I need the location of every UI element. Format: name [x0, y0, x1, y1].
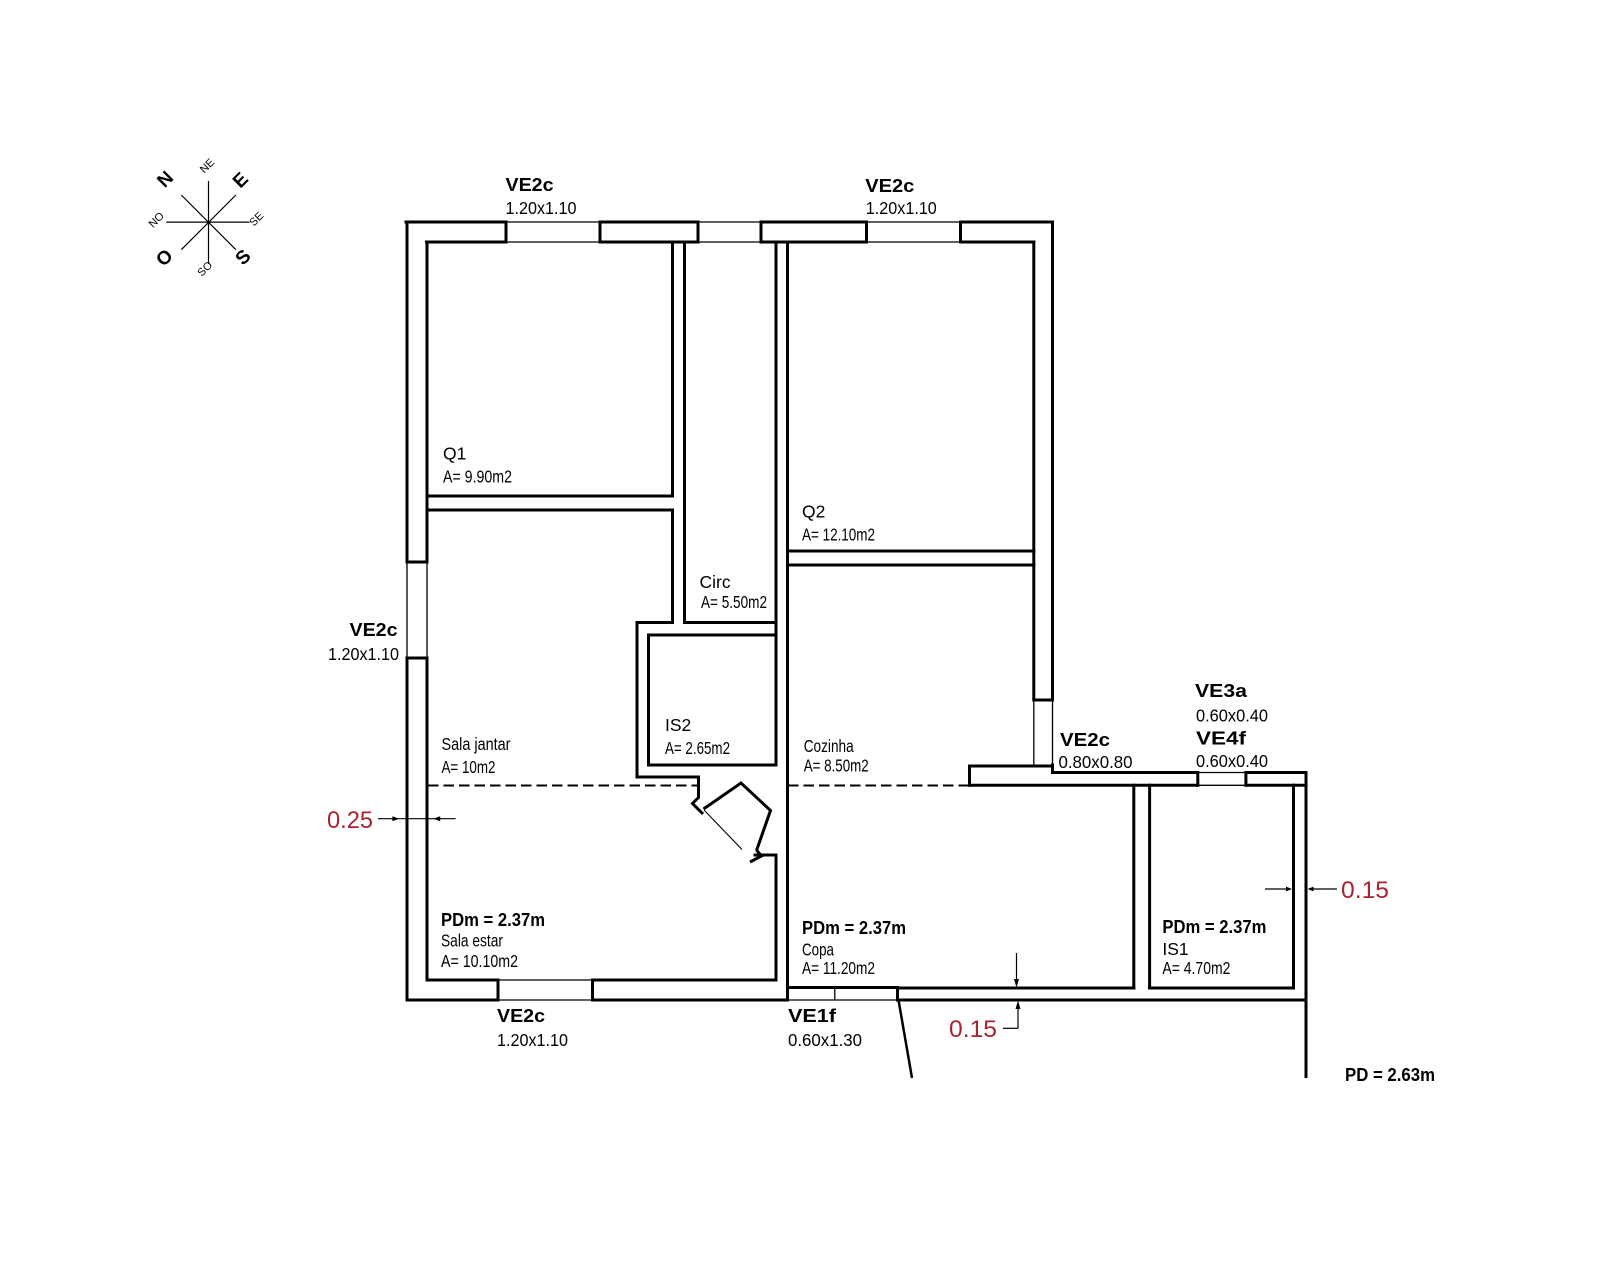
svg-text:0.15: 0.15 [949, 1016, 997, 1043]
svg-text:0.25: 0.25 [327, 807, 373, 834]
svg-text:0.15: 0.15 [1341, 877, 1389, 904]
svg-text:PDm = 2.37m: PDm = 2.37m [1162, 917, 1266, 937]
svg-text:A= 5.50m2: A= 5.50m2 [701, 592, 767, 612]
svg-text:Cozinha: Cozinha [804, 736, 854, 756]
svg-text:0.60x1.30: 0.60x1.30 [788, 1030, 862, 1050]
svg-text:Sala estar: Sala estar [441, 931, 503, 951]
svg-text:PDm = 2.37m: PDm = 2.37m [802, 918, 906, 938]
svg-text:Copa: Copa [802, 940, 834, 960]
svg-text:A= 8.50m2: A= 8.50m2 [804, 756, 869, 776]
svg-text:VE2c: VE2c [350, 620, 398, 640]
svg-text:0.60x0.40: 0.60x0.40 [1196, 751, 1268, 771]
svg-text:A= 2.65m2: A= 2.65m2 [665, 738, 730, 758]
svg-text:VE1f: VE1f [788, 1006, 837, 1026]
svg-text:PDm = 2.37m: PDm = 2.37m [441, 910, 545, 930]
svg-text:A= 11.20m2: A= 11.20m2 [802, 958, 875, 978]
svg-text:Circ: Circ [700, 572, 731, 592]
svg-text:1.20x1.10: 1.20x1.10 [328, 644, 399, 664]
svg-text:PD = 2.63m: PD = 2.63m [1345, 1065, 1435, 1085]
svg-text:1.20x1.10: 1.20x1.10 [866, 198, 937, 218]
svg-text:0.80x0.80: 0.80x0.80 [1059, 752, 1133, 772]
svg-text:IS1: IS1 [1162, 939, 1188, 959]
svg-text:A= 10.10m2: A= 10.10m2 [441, 951, 518, 971]
svg-text:Q2: Q2 [802, 502, 825, 522]
svg-text:VE2c: VE2c [865, 176, 914, 196]
svg-text:1.20x1.10: 1.20x1.10 [497, 1030, 568, 1050]
svg-text:A= 12.10m2: A= 12.10m2 [802, 525, 875, 545]
svg-text:VE2c: VE2c [1060, 730, 1110, 750]
svg-text:VE2c: VE2c [497, 1006, 545, 1026]
svg-text:IS2: IS2 [665, 715, 691, 735]
svg-text:A= 9.90m2: A= 9.90m2 [443, 467, 512, 487]
svg-text:VE3a: VE3a [1195, 681, 1248, 701]
svg-text:VE2c: VE2c [506, 175, 554, 195]
svg-text:Sala jantar: Sala jantar [442, 734, 511, 754]
svg-text:1.20x1.10: 1.20x1.10 [506, 198, 577, 218]
svg-text:0.60x0.40: 0.60x0.40 [1196, 706, 1268, 726]
svg-text:VE4f: VE4f [1196, 729, 1247, 749]
svg-text:A= 10m2: A= 10m2 [442, 757, 496, 777]
svg-text:Q1: Q1 [443, 444, 466, 464]
svg-text:A= 4.70m2: A= 4.70m2 [1162, 958, 1230, 978]
